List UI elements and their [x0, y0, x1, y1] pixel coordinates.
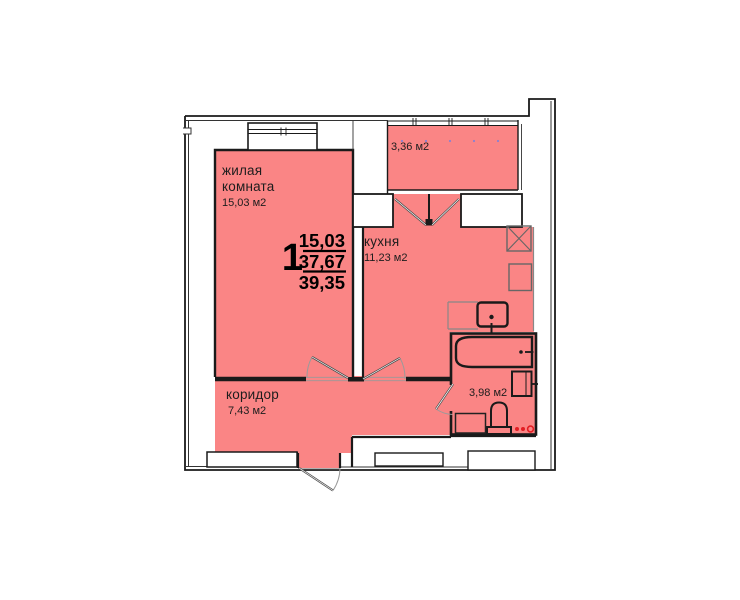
window-bay — [248, 123, 317, 150]
kitchen-label: кухня — [364, 234, 399, 249]
corridor-label: коридор — [226, 387, 279, 402]
balcony-door-jamb-right — [461, 194, 522, 227]
wall-niche-right — [468, 451, 535, 470]
radiator-niche-left — [207, 452, 297, 467]
floor-plan-page: жилая комната 15,03 м2 кухня 11,23 м2 ко… — [0, 0, 740, 600]
total-area-value: 37,67 — [299, 251, 345, 272]
living-area-value: 15,03 — [299, 230, 345, 251]
balcony-door-jamb-left — [353, 194, 393, 227]
corridor-area: 7,43 м2 — [228, 405, 266, 417]
window-glazing — [388, 121, 518, 126]
bathroom-floor — [452, 334, 535, 434]
window-tick — [413, 118, 488, 126]
living-room-label-line2: комната — [222, 179, 275, 194]
floor-plan: жилая комната 15,03 м2 кухня 11,23 м2 ко… — [0, 0, 740, 600]
bathroom-area: 3,98 м2 — [469, 387, 507, 399]
living-room-window — [248, 123, 317, 150]
balcony-door-post-foot — [426, 219, 433, 226]
living-room-label-line1: жилая — [222, 163, 262, 178]
wall-notch-top-left — [183, 128, 191, 134]
bathtub-faucet — [519, 350, 523, 354]
balcony-floor — [388, 126, 518, 190]
balcony-area: 3,36 м2 — [391, 141, 429, 153]
wall-stub — [348, 377, 364, 382]
radiator-niche-middle — [375, 453, 443, 466]
kitchen-area: 11,23 м2 — [364, 252, 407, 264]
entry-threshold-floor — [298, 453, 340, 468]
living-room-area: 15,03 м2 — [222, 197, 266, 209]
kitchen-sink-faucet — [489, 315, 493, 319]
overall-area-value: 39,35 — [299, 272, 345, 293]
